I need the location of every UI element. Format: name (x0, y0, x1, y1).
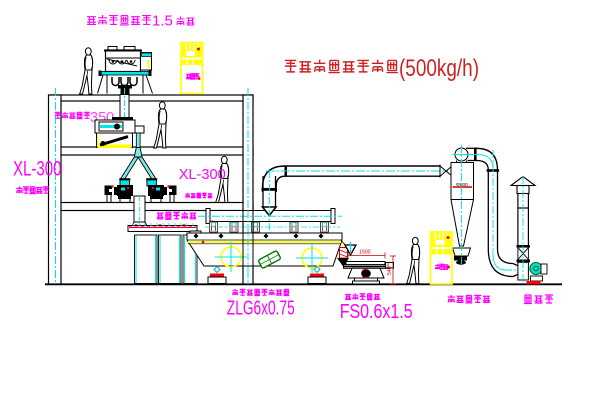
svg-text:XL-300: XL-300 (179, 166, 226, 183)
svg-text:ZLG6x0.75: ZLG6x0.75 (227, 298, 295, 320)
svg-text:FS0.6x1.5: FS0.6x1.5 (340, 301, 413, 323)
svg-text:1.5: 1.5 (152, 13, 173, 30)
svg-text:(500kg/h): (500kg/h) (399, 55, 479, 82)
svg-text:540: 540 (387, 266, 393, 275)
svg-text:1500: 1500 (359, 250, 371, 256)
svg-text:XL-300: XL-300 (13, 158, 62, 181)
